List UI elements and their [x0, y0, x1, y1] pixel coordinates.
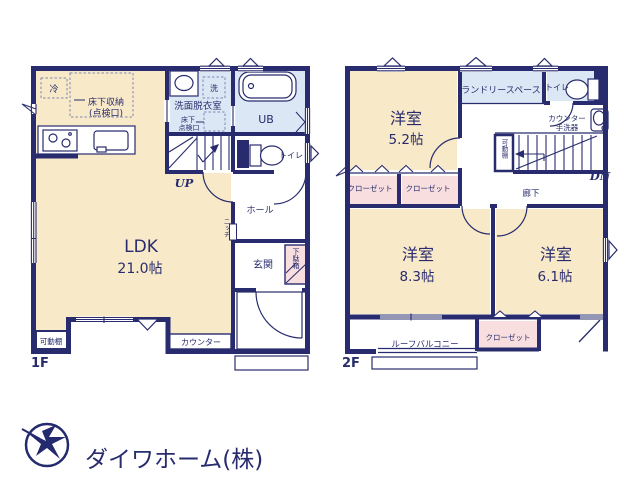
- company-logo: ダイワホーム(株): [22, 424, 263, 473]
- shoe-box-label: 下駄箱: [292, 248, 300, 270]
- fridge-label: 冷: [49, 83, 58, 95]
- f2-shelf-label: 可動棚: [500, 139, 508, 160]
- entrance-label: 玄関: [253, 258, 273, 271]
- bedroom3-area: 6.1帖: [538, 269, 573, 285]
- shelf-label: 可動棚: [40, 336, 63, 346]
- closet1-label: クローゼット: [348, 183, 393, 193]
- laundry-label: ランドリースペース: [461, 85, 540, 96]
- vent-triangle-icon: [466, 58, 486, 67]
- bathtub-drain-icon: [249, 84, 254, 89]
- bath-label: UB: [258, 113, 274, 126]
- toilet-duct: [237, 140, 249, 168]
- vanity-bowl-icon: [175, 76, 193, 91]
- burner-dot-icon: [69, 133, 72, 136]
- inspection-hatch-label: (点検口): [89, 107, 123, 119]
- floor-plan-canvas: LDK 21.0帖 冷 床下収納 (点検口) 洗 洗面脱衣室 床下 点検口 UB…: [0, 0, 640, 480]
- basin-label-2: 手洗器: [556, 122, 579, 132]
- counter-label: カウンター: [181, 338, 221, 347]
- side-vent-icon: [311, 146, 319, 161]
- front-door-arc: [256, 292, 302, 338]
- bedroom1-label: 洋室: [390, 109, 422, 128]
- burner-icon: [62, 139, 70, 147]
- bedroom3-label: 洋室: [540, 245, 572, 264]
- underfloor-storage-label: 床下収納: [88, 96, 124, 108]
- toilet-tank-icon: [588, 79, 599, 100]
- niche-label: ニッチ: [222, 218, 230, 238]
- corridor-label: 廊下: [522, 188, 540, 199]
- stairs-down-label: DN: [589, 169, 611, 183]
- washroom-label: 洗面脱衣室: [174, 100, 222, 112]
- vent-triangle-icon: [243, 59, 258, 67]
- bay-window-triangle-icon: [137, 319, 158, 330]
- toilet-bowl-icon: [566, 80, 588, 99]
- company-name: ダイワホーム(株): [85, 447, 263, 473]
- f1-floor-label: 1F: [31, 356, 49, 371]
- stairs-arrow-icon: [210, 144, 219, 153]
- floor-plan-page: LDK 21.0帖 冷 床下収納 (点検口) 洗 洗面脱衣室 床下 点検口 UB…: [0, 0, 640, 480]
- bedroom2-area: 8.3帖: [400, 269, 435, 285]
- vent-triangle-icon: [384, 58, 401, 66]
- balcony-step: [372, 357, 477, 369]
- underfloor-label-1: 床下: [181, 115, 195, 124]
- balcony-label: ルーフバルコニー: [391, 340, 458, 350]
- f2-stairs: [516, 135, 597, 170]
- f1-stairs: [169, 136, 229, 170]
- hall-label: ホール: [246, 205, 273, 216]
- toilet-label: トイレ: [279, 151, 303, 160]
- closet2-label: クローゼット: [406, 183, 451, 193]
- basin-label-1: カウンター: [548, 114, 586, 123]
- bedroom2-label: 洋室: [402, 245, 434, 264]
- closet3-label: クローゼット: [486, 332, 531, 342]
- niche-notch: [230, 224, 237, 240]
- f2-room-fills: [348, 71, 603, 348]
- entrance-step: [235, 356, 308, 370]
- stairs-up-label: UP: [175, 176, 194, 190]
- sink-tap-icon: [97, 147, 106, 152]
- bedroom1-area: 5.2帖: [389, 132, 424, 148]
- wash-basin-bowl-icon: [594, 111, 605, 125]
- entrance-porch: [237, 292, 306, 349]
- ldk-label: LDK: [124, 237, 159, 257]
- ldk-area: 21.0帖: [117, 261, 162, 277]
- side-vent-icon: [609, 241, 617, 259]
- stove-icon: [43, 130, 77, 151]
- toilet-tank-icon: [250, 145, 261, 166]
- vent-triangle-icon: [537, 59, 552, 67]
- underfloor-label-2: 点検口: [179, 123, 200, 132]
- washer-label: 洗: [210, 83, 218, 93]
- toilet-door-arc: [274, 172, 306, 204]
- burner-icon: [49, 134, 57, 142]
- toilet-label: トイレ: [545, 83, 569, 92]
- vent-triangle-icon: [209, 59, 224, 67]
- f2-floor-label: 2F: [342, 356, 360, 371]
